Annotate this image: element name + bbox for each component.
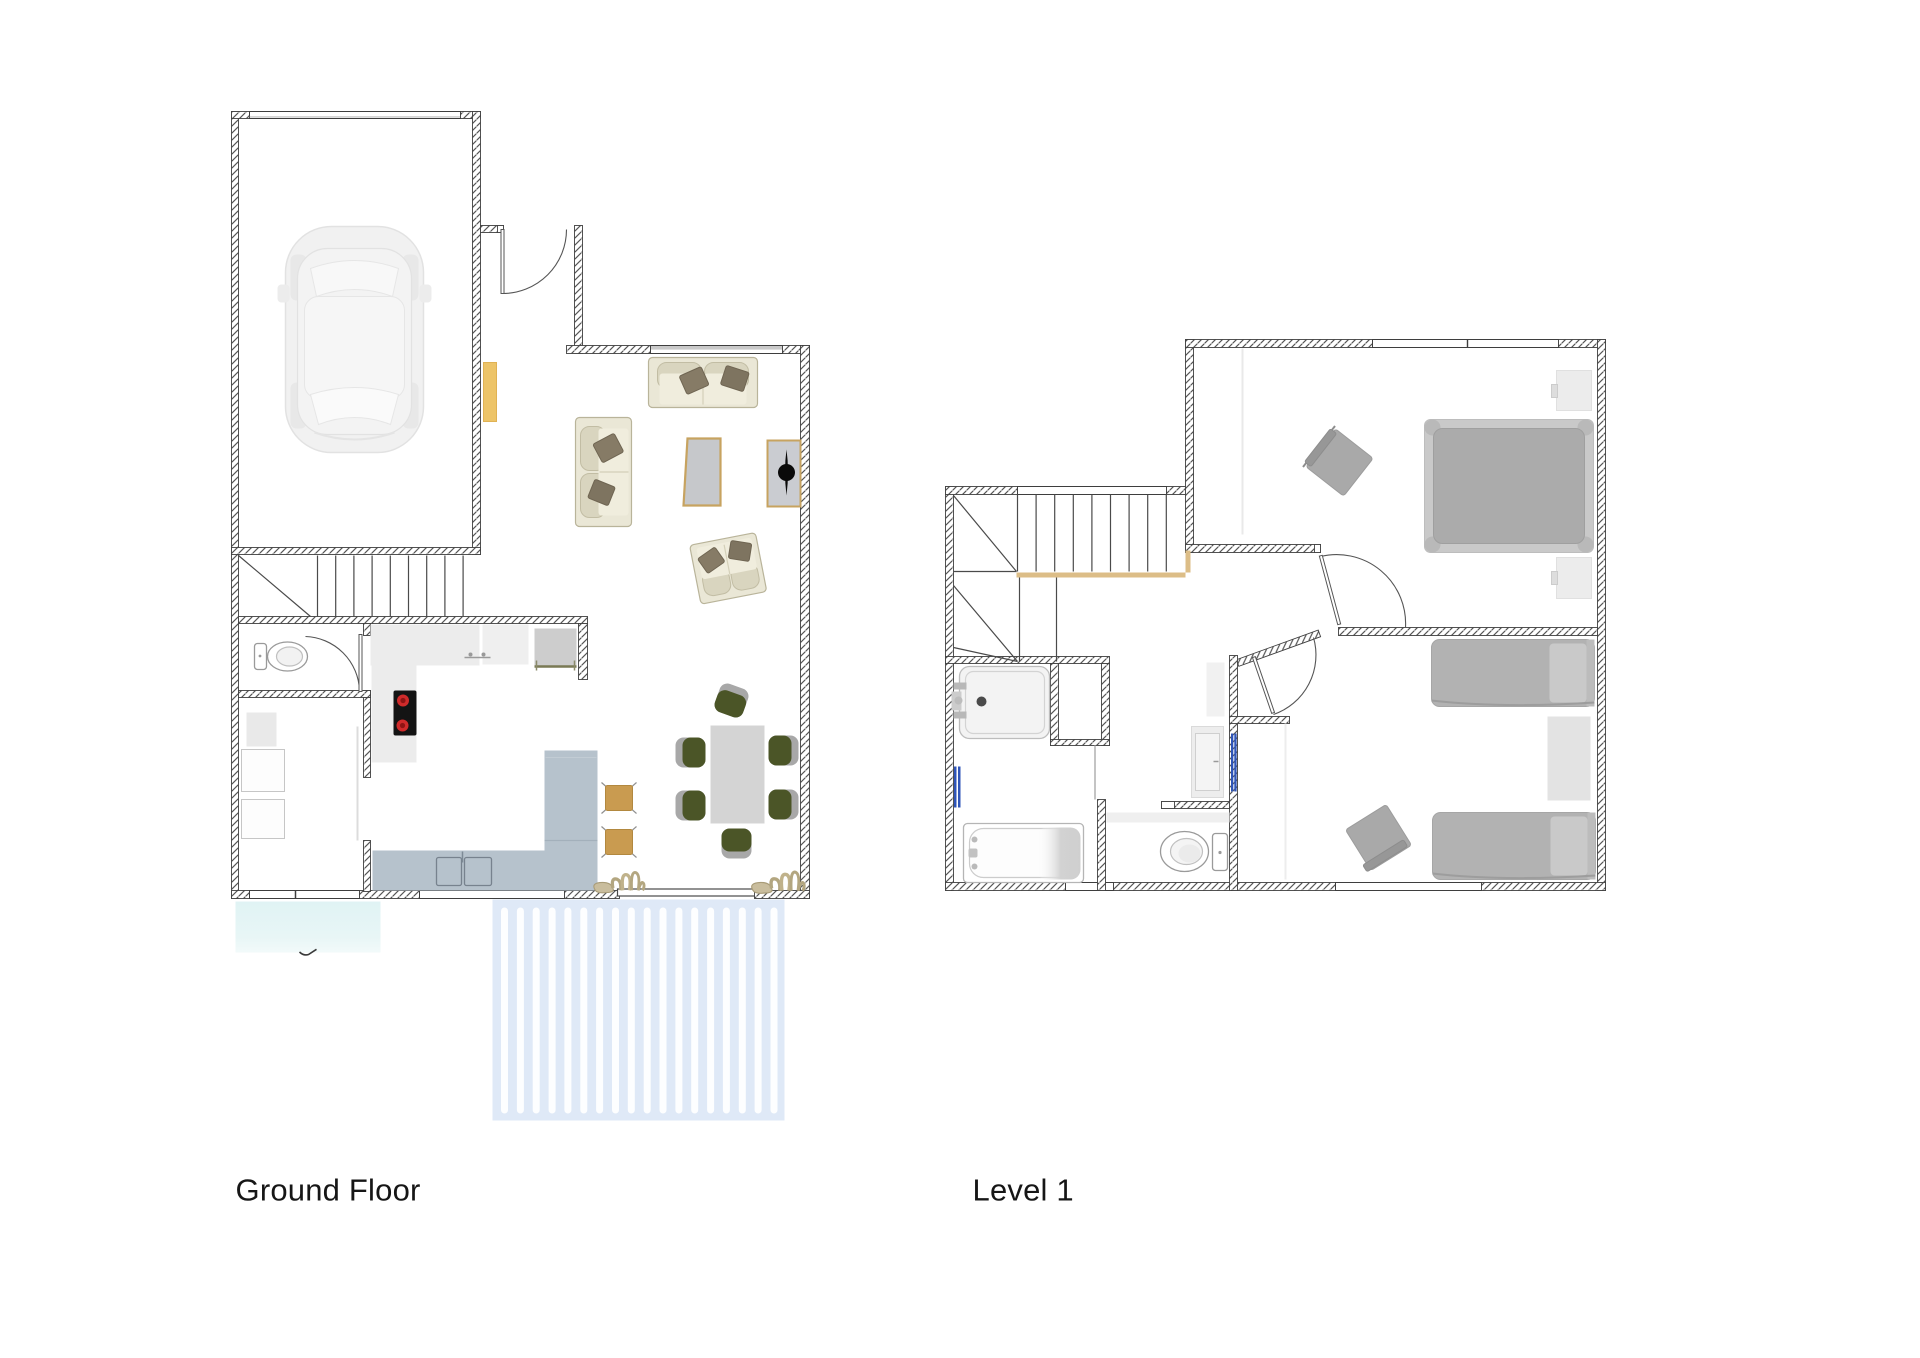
svg-text:Level 1: Level 1	[973, 1173, 1074, 1208]
svg-text:Ground Floor: Ground Floor	[236, 1173, 421, 1208]
